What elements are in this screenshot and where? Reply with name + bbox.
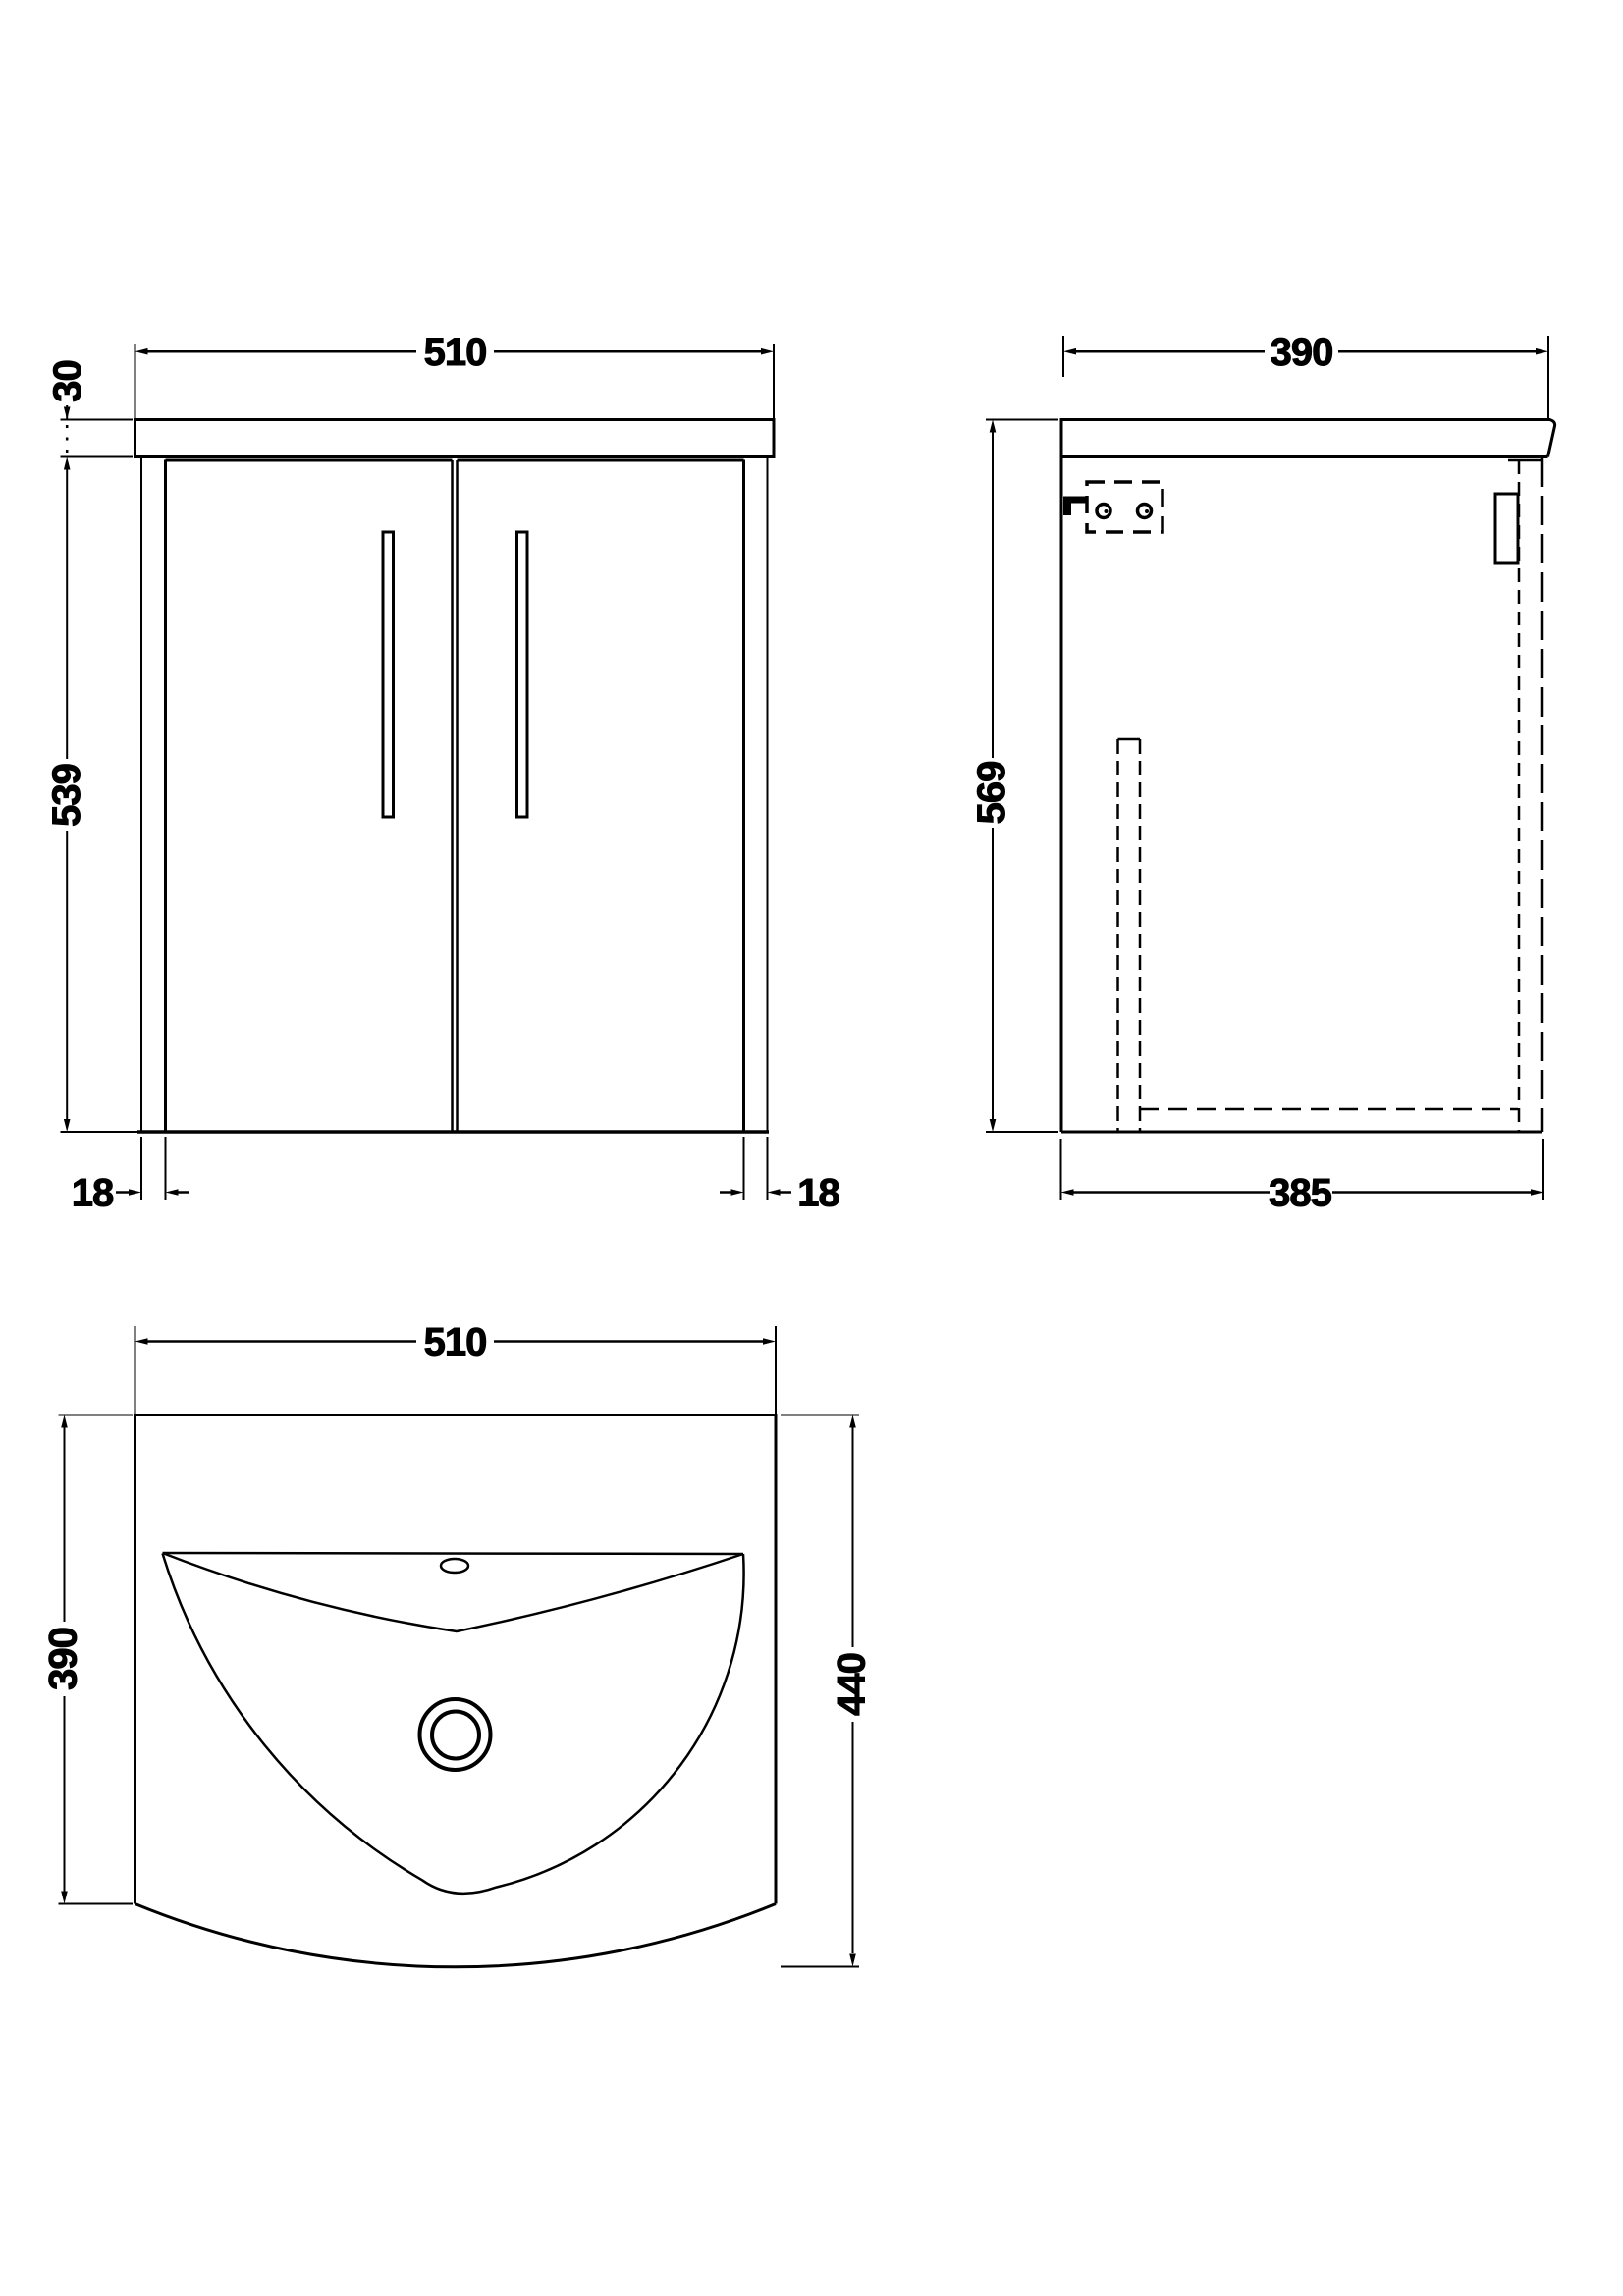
svg-text:569: 569: [970, 762, 1013, 825]
svg-text:30: 30: [46, 360, 89, 402]
svg-text:539: 539: [45, 764, 88, 827]
svg-text:510: 510: [424, 1320, 487, 1363]
svg-text:385: 385: [1269, 1171, 1331, 1214]
svg-text:390: 390: [1271, 331, 1333, 374]
svg-text:390: 390: [42, 1628, 85, 1690]
svg-text:18: 18: [797, 1171, 839, 1214]
svg-text:440: 440: [831, 1653, 874, 1716]
svg-text:510: 510: [424, 331, 487, 374]
svg-text:18: 18: [72, 1171, 114, 1214]
